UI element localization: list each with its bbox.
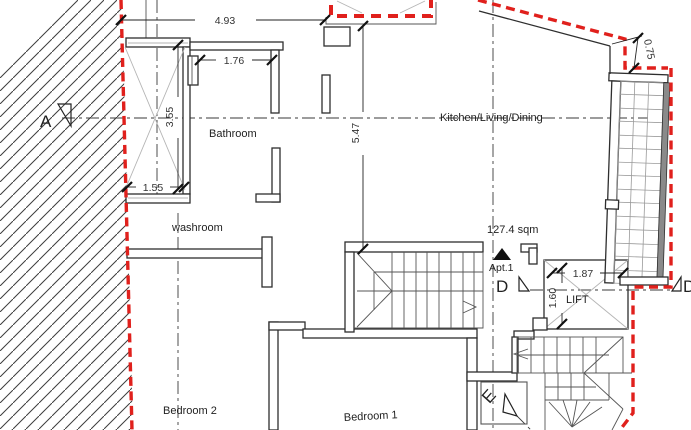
dim-lift-depth: 1.60 [547, 288, 559, 309]
section-marker-d-right-label: D [683, 277, 691, 296]
section-centerlines [62, 0, 672, 430]
top-right-facade-walls [479, 11, 610, 74]
dim-shaft-height: 3.55 [164, 107, 176, 128]
dim-living-depth: 5.47 [350, 123, 362, 144]
dim-lift-width: 1.87 [573, 268, 594, 280]
room-label-lift: LIFT [566, 294, 589, 306]
room-label-bathroom: Bathroom [209, 128, 257, 140]
apartment-entry-arrow-icon [493, 248, 511, 260]
washroom-walls [127, 237, 272, 287]
room-label-kitchen-living-dining: Kitchen/Living/Dining [440, 112, 543, 124]
terrace-bottom-wall [620, 277, 668, 285]
section-marker-d-label: D [496, 277, 508, 296]
room-label-bedroom-1: Bedroom 1 [344, 409, 398, 424]
red-dashed-shaft [331, 0, 431, 16]
section-d-left-triangle-icon [519, 277, 529, 291]
section-d-right-triangle-icon [672, 277, 681, 291]
dim-bathroom-width: 1.76 [224, 55, 245, 67]
shaft-lightwell [125, 38, 190, 203]
site-boundary-red-dashed [121, 0, 671, 430]
floor-plan-drawing: 4.93 1.76 3.55 1.55 5.47 0.75 1.87 1.60 … [0, 0, 691, 430]
dim-shaft-width: 1.55 [143, 182, 164, 194]
room-label-washroom: washroom [171, 222, 223, 234]
hatched-party-wall-region [0, 0, 133, 430]
terrace-tiled [602, 73, 670, 285]
apartment-name-label: Apt.1 [489, 262, 514, 274]
section-marker-a-label: A [40, 112, 52, 131]
bathroom-walls [188, 42, 330, 202]
apartment-area-label: 127.4 sqm [487, 224, 538, 236]
staircase-secondary [512, 331, 632, 430]
section-e-triangle-icon [503, 394, 517, 416]
dim-terrace-offset: 0.75 [641, 38, 657, 61]
top-shaft-structure [324, 1, 436, 46]
room-label-bedroom-2: Bedroom 2 [163, 405, 217, 417]
staircase-main [345, 242, 483, 332]
floor-plan-canvas: 4.93 1.76 3.55 1.55 5.47 0.75 1.87 1.60 … [0, 0, 691, 430]
dim-top-width: 4.93 [215, 15, 236, 27]
